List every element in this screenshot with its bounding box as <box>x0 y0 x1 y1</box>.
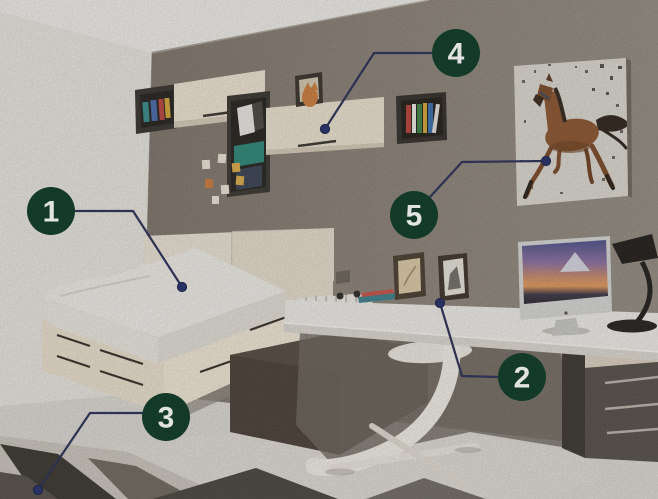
monitor-stand <box>552 318 580 336</box>
photo-frame-right <box>438 253 469 301</box>
callout-4-number: 4 <box>448 38 465 71</box>
monitor-screen <box>522 240 608 304</box>
binder-white <box>237 104 255 136</box>
callout-1-dot <box>177 282 186 291</box>
callout-1-number: 1 <box>43 196 60 229</box>
lamp-base <box>607 320 657 333</box>
drawer-side-face <box>562 342 585 458</box>
callout-5-dot <box>541 156 550 165</box>
horse-poster <box>514 58 632 206</box>
chair-shadow-1 <box>325 469 355 476</box>
callout-3-number: 3 <box>158 402 175 435</box>
callout-5-number: 5 <box>406 200 423 233</box>
chair-shadow-2 <box>455 447 481 453</box>
callout-4-dot <box>320 124 329 133</box>
monitor-chin-dot <box>564 311 567 314</box>
callout-2-number: 2 <box>514 362 531 395</box>
photo-frame-left <box>393 252 426 300</box>
callout-3-dot <box>33 485 42 494</box>
callout-2-dot <box>435 298 444 307</box>
annotated-room-image: 1 2 3 4 5 <box>0 0 658 499</box>
